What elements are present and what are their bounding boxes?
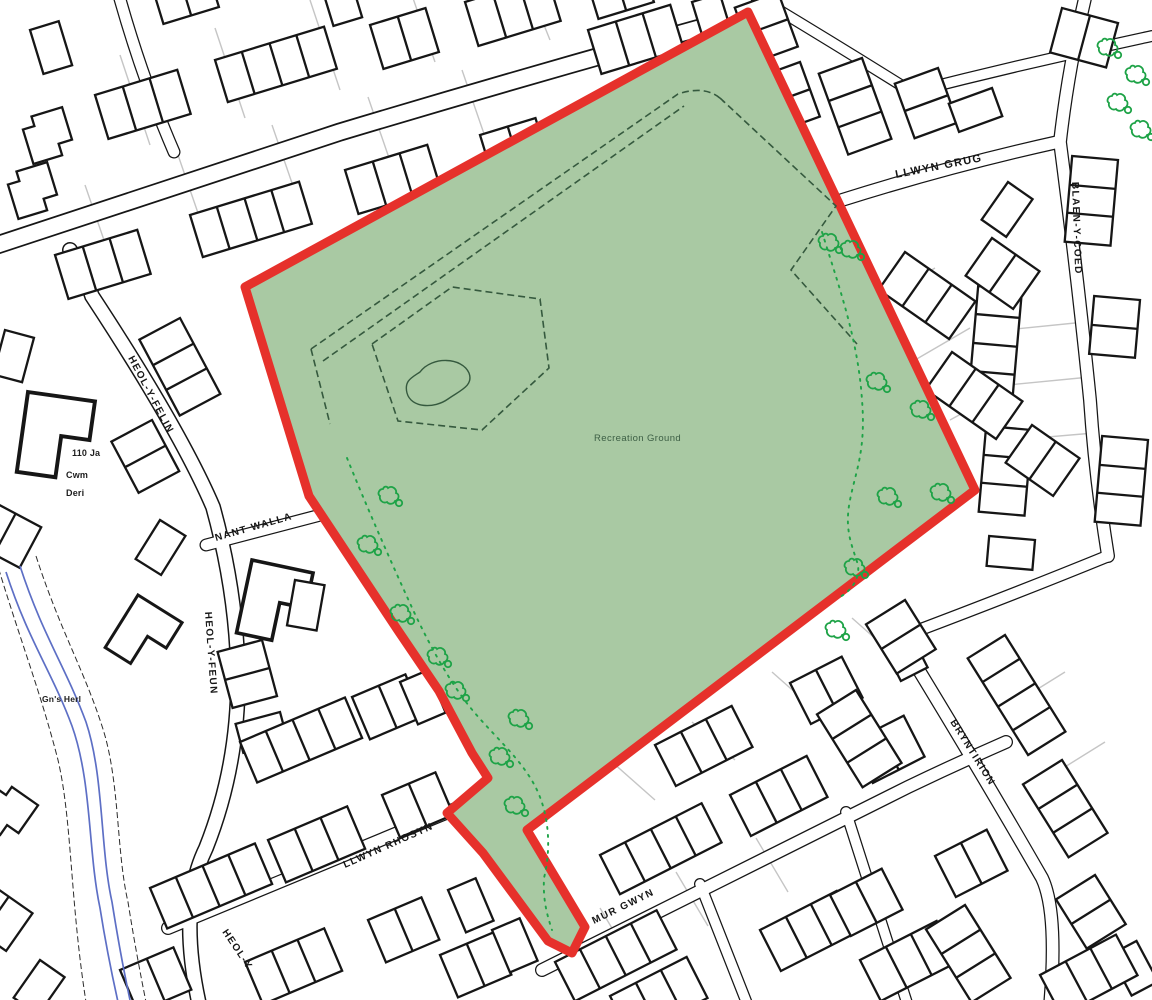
tree-icon	[1126, 66, 1150, 86]
building	[5, 162, 61, 219]
place-label-cwm-deri-1: 110 Ja	[72, 448, 101, 458]
place-label-gns-herl: Gn's Herl	[42, 694, 81, 704]
building-cwm-deri	[17, 392, 95, 481]
place-label-cwm-deri-3: Deri	[66, 488, 84, 498]
building	[0, 500, 41, 568]
building	[968, 635, 1066, 755]
place-labels-layer: 110 Ja Cwm Deri Gn's Herl	[42, 448, 101, 704]
building	[190, 182, 312, 257]
building	[949, 88, 1002, 132]
site-location-map: Recreation Ground LLWYN GRUG BLAEN-Y-COE…	[0, 0, 1152, 1000]
offsite-trees	[1098, 39, 1152, 141]
tree-icon	[1131, 121, 1152, 141]
building	[1095, 436, 1148, 526]
building	[448, 878, 494, 932]
building	[320, 0, 362, 26]
building	[370, 8, 439, 69]
place-label-cwm-deri-2: Cwm	[66, 470, 88, 480]
map-canvas: Recreation Ground LLWYN GRUG BLAEN-Y-COE…	[0, 0, 1152, 1000]
building	[245, 928, 342, 1000]
building	[215, 27, 337, 102]
building	[0, 330, 34, 382]
building	[0, 880, 33, 951]
building	[136, 520, 186, 575]
building	[1089, 296, 1140, 358]
tree-icon	[826, 621, 850, 641]
building	[935, 830, 1008, 897]
building	[150, 0, 219, 24]
building	[14, 960, 65, 1000]
street-label-heol-y-feun: HEOL-Y-FEUN	[202, 611, 219, 695]
building	[20, 107, 76, 164]
building	[287, 580, 325, 631]
building	[465, 0, 561, 46]
building	[0, 780, 38, 843]
building	[95, 70, 191, 139]
building	[105, 595, 182, 675]
building	[1023, 760, 1108, 857]
building	[730, 756, 828, 836]
building	[30, 21, 72, 74]
building	[368, 897, 439, 962]
tree-icon	[1108, 94, 1132, 114]
site-label: Recreation Ground	[594, 433, 681, 444]
building	[240, 697, 362, 782]
street-label-heol-y-partial: HEOL-Y	[220, 928, 255, 972]
building	[120, 947, 191, 1000]
building	[982, 182, 1033, 237]
building	[55, 230, 151, 299]
building	[987, 536, 1035, 570]
building	[218, 640, 277, 708]
